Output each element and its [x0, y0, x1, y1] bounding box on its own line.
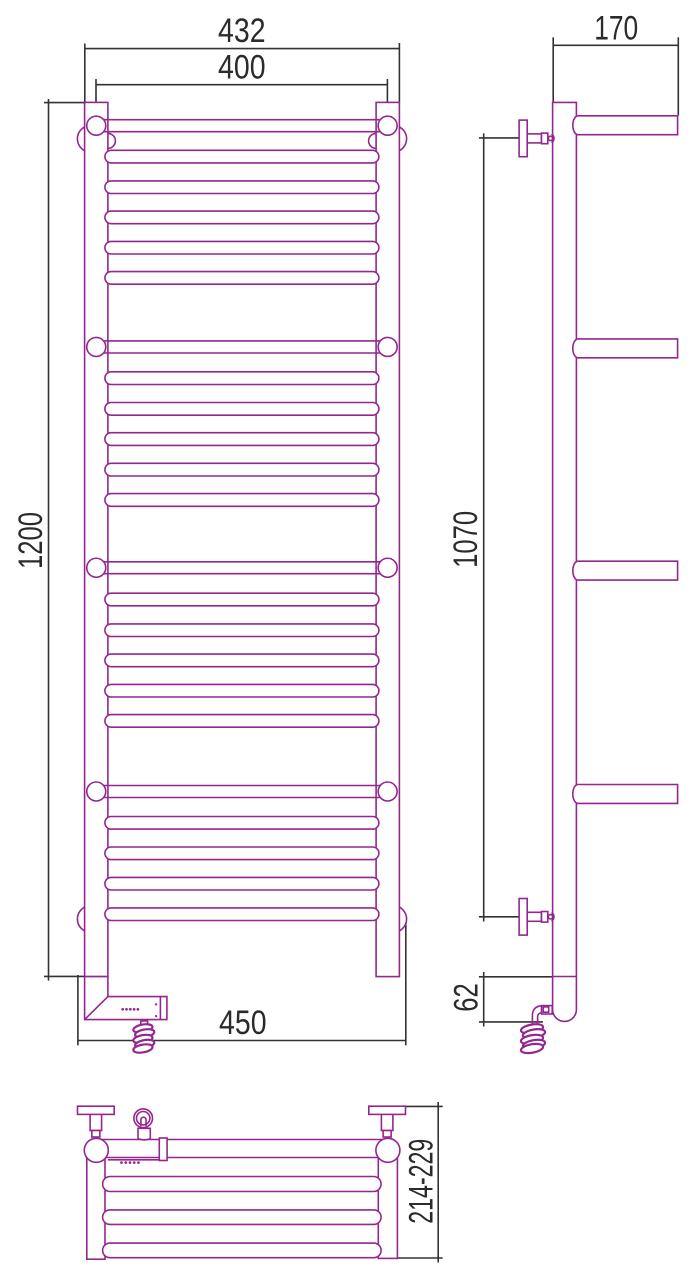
svg-text:214-229: 214-229	[403, 1139, 441, 1224]
svg-text:432: 432	[218, 12, 266, 50]
svg-text:170: 170	[594, 10, 638, 48]
svg-text:62: 62	[447, 983, 485, 1012]
svg-text:1070: 1070	[447, 511, 485, 568]
svg-text:1200: 1200	[12, 512, 50, 569]
svg-text:450: 450	[219, 1004, 267, 1042]
svg-text:400: 400	[218, 48, 266, 86]
